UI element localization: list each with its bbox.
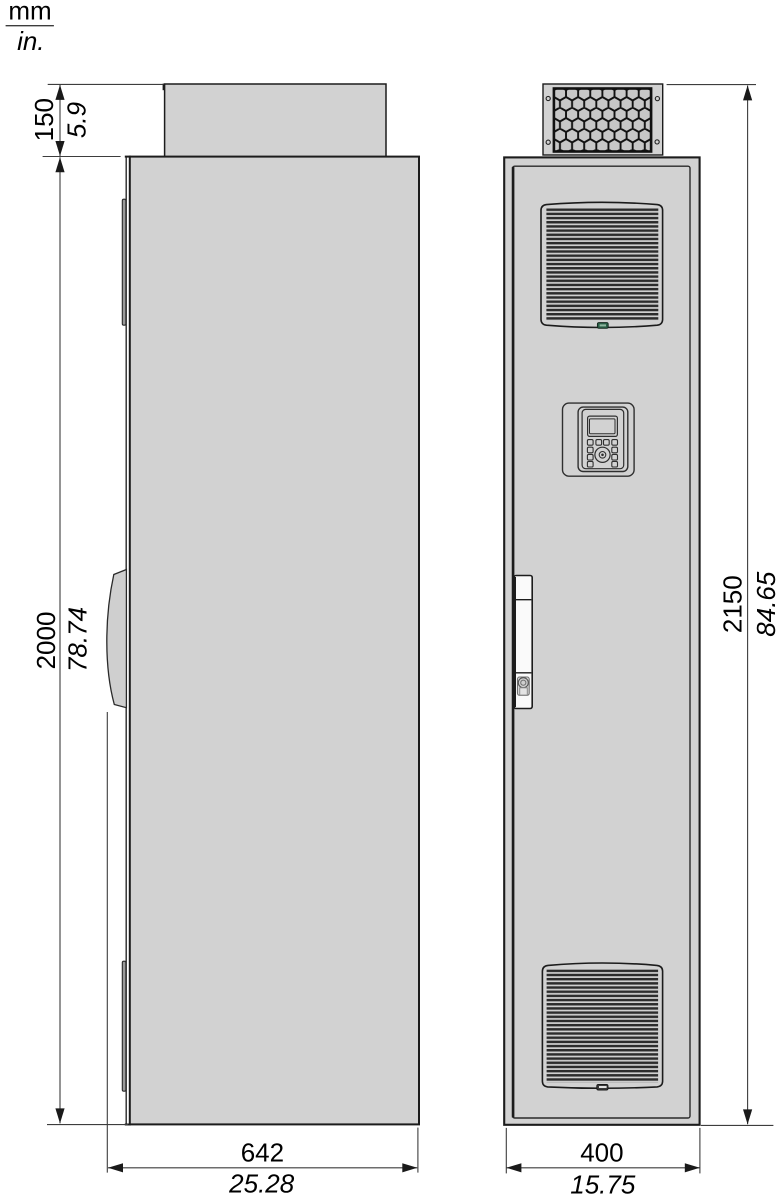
svg-text:15.75: 15.75 — [570, 1170, 636, 1200]
svg-text:in.: in. — [17, 26, 44, 56]
svg-text:78.74: 78.74 — [63, 607, 93, 672]
svg-text:400: 400 — [580, 1138, 623, 1168]
svg-text:84.65: 84.65 — [751, 571, 779, 637]
svg-text:150: 150 — [29, 98, 59, 141]
svg-text:2150: 2150 — [718, 575, 748, 633]
svg-text:mm: mm — [8, 0, 51, 26]
svg-text:5.9: 5.9 — [62, 102, 92, 138]
svg-text:2000: 2000 — [31, 612, 61, 670]
svg-text:642: 642 — [241, 1138, 284, 1168]
svg-text:25.28: 25.28 — [228, 1169, 295, 1199]
